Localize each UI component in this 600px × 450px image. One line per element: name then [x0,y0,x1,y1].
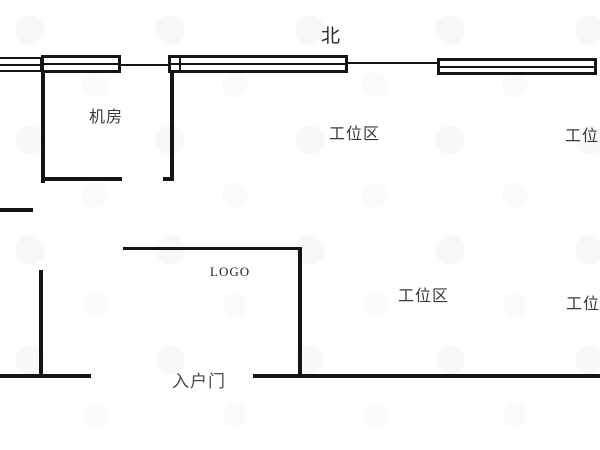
room-label-workstation-bottom-right: 工位区 [566,296,600,314]
room-label-machine-room: 机房 [89,109,123,127]
wall-left-stub [0,208,33,212]
window-top-far-left-midline [0,64,40,66]
north-label: 北 [321,27,341,48]
room-label-workstation-bottom: 工位区 [398,288,449,306]
room-label-workstation-top-right: 工位区 [565,128,600,146]
window-top-far-left [0,57,42,72]
wall-machine-room-left [41,62,45,183]
window-top-right [437,58,597,75]
wall-bottom-right [253,374,600,378]
entrance-door-label: 入户门 [172,373,226,392]
logo-label: LOGO [210,265,250,279]
window-top-left [41,55,121,73]
wall-top-thin-right [346,62,439,64]
window-top-middle-junction [179,58,181,70]
wall-machine-room-right-foot [163,177,174,181]
window-top-middle-midline [171,63,345,65]
wall-bottom-left [0,374,91,378]
floorplan-canvas: 北机房工位区工位区LOGO工位区工位区入户门 [0,0,600,450]
window-top-left-midline [44,63,118,65]
wall-logo-partition-right [298,247,302,378]
wall-machine-room-bottom [41,177,122,181]
room-label-workstation-top: 工位区 [329,126,380,144]
wall-lower-left-vertical [39,270,43,378]
window-top-middle [168,55,348,73]
wall-top-thin-left [119,64,170,66]
wall-machine-room-right [170,68,174,181]
wall-logo-partition-top [123,247,302,250]
window-top-right-midline [440,66,594,68]
